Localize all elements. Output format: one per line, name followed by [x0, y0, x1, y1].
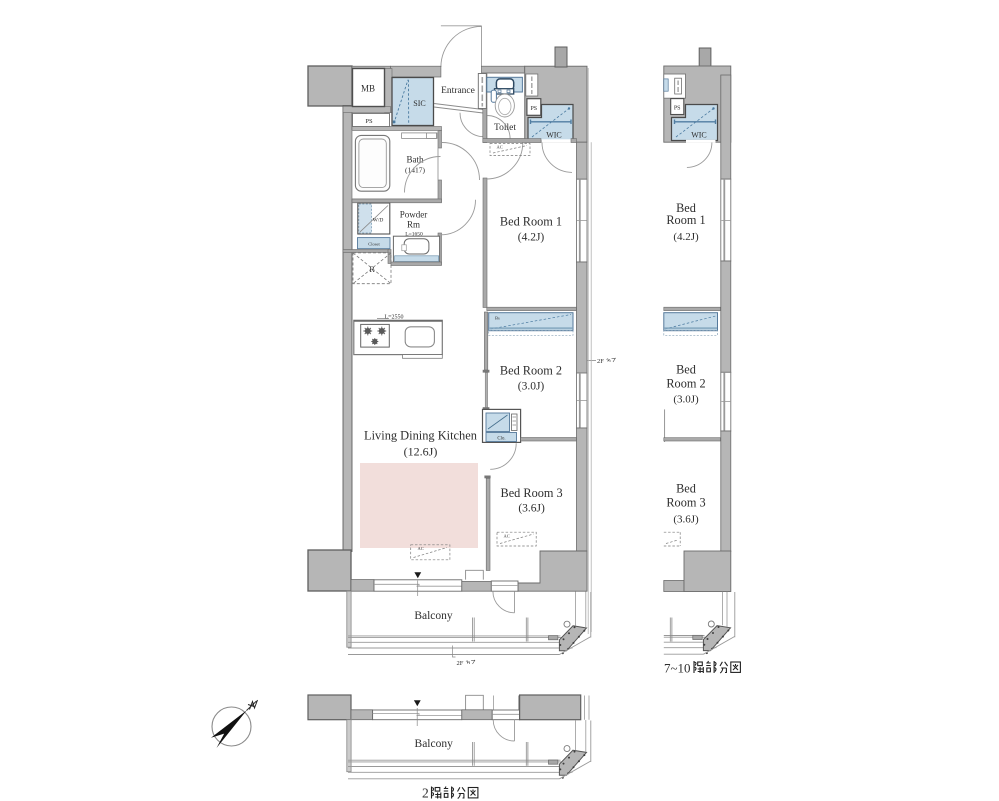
svg-text:Bed Room 3: Bed Room 3 [501, 486, 563, 500]
svg-text:Powder: Powder [400, 210, 428, 220]
svg-text:Bs: Bs [495, 316, 500, 321]
svg-text:AC: AC [418, 546, 424, 551]
svg-text:Bed: Bed [676, 363, 696, 377]
svg-text:Bed Room 2: Bed Room 2 [500, 364, 562, 378]
svg-text:AC: AC [497, 145, 503, 150]
svg-text:PS: PS [530, 106, 537, 112]
svg-text:2: 2 [422, 786, 429, 801]
svg-text:Entrance: Entrance [441, 86, 475, 96]
svg-text:Clo.: Clo. [497, 437, 505, 442]
svg-text:W/D: W/D [373, 218, 384, 224]
svg-text:Living Dining Kitchen: Living Dining Kitchen [364, 429, 477, 443]
svg-text:(4.2J): (4.2J) [518, 232, 545, 244]
svg-text:(3.6J): (3.6J) [518, 503, 545, 515]
svg-text:(12.6J): (12.6J) [404, 445, 438, 459]
svg-text:MB: MB [361, 84, 375, 94]
svg-text:(3.0J): (3.0J) [673, 394, 699, 406]
svg-text:Bed: Bed [676, 482, 696, 496]
svg-text:Balcony: Balcony [415, 738, 454, 750]
svg-text:Closet: Closet [368, 242, 380, 247]
svg-text:2F: 2F [597, 358, 604, 365]
svg-text:(3.6J): (3.6J) [673, 514, 699, 526]
svg-text:2F: 2F [457, 660, 464, 667]
svg-text:AC: AC [504, 534, 510, 539]
svg-text:Bed Room 1: Bed Room 1 [500, 215, 562, 229]
svg-text:Room 1: Room 1 [666, 213, 705, 227]
svg-text:(3.0J): (3.0J) [518, 381, 545, 393]
svg-text:PS: PS [674, 106, 681, 112]
svg-text:Rm: Rm [407, 220, 420, 230]
svg-text:Toilet: Toilet [494, 123, 516, 133]
svg-text:7~10: 7~10 [664, 661, 691, 676]
svg-text:WIC: WIC [691, 131, 707, 140]
svg-text:PS: PS [365, 118, 373, 125]
svg-text:WIC: WIC [546, 131, 562, 140]
svg-text:Room 2: Room 2 [666, 377, 705, 391]
svg-text:Room 3: Room 3 [666, 496, 705, 510]
svg-text:Balcony: Balcony [414, 610, 453, 622]
svg-text:SIC: SIC [413, 99, 425, 108]
svg-text:(4.2J): (4.2J) [673, 231, 699, 243]
svg-text:R: R [369, 265, 375, 274]
svg-text:L=2550: L=2550 [384, 315, 403, 321]
svg-text:Bath: Bath [407, 155, 424, 165]
